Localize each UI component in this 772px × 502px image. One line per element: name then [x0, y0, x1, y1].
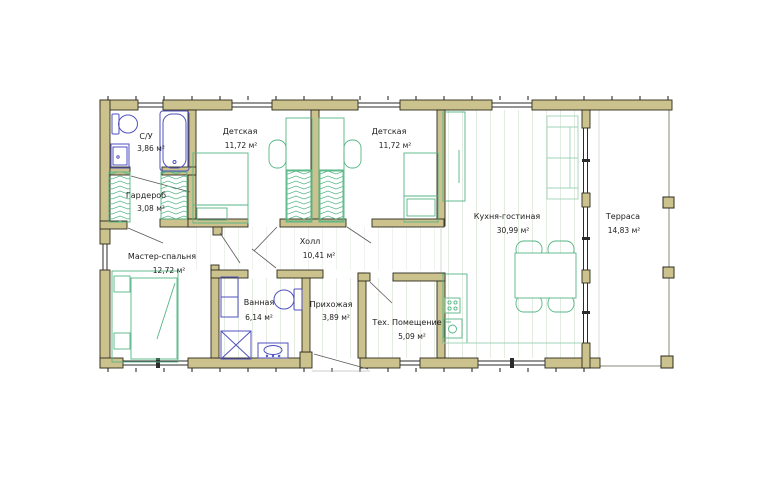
room-area-garderob: 3,08 м² [137, 204, 165, 213]
room-label-tech: Тех. Помещение [371, 318, 441, 327]
bed-icon [193, 153, 248, 223]
room-area-kitchen: 30,99 м² [497, 226, 530, 235]
room-area-hall: 10,41 м² [303, 251, 336, 260]
terrace-post [663, 267, 674, 278]
room-label-garderob: Гардероб [126, 191, 166, 200]
bed-icon [319, 118, 361, 222]
room-label-master: Мастер-спальня [128, 252, 196, 261]
bedside-table-icon [344, 140, 361, 168]
bed-icon [269, 118, 312, 222]
floor-plan: С/У 3,86 м² Гардероб 3,08 м² Детская 11,… [0, 0, 772, 502]
room-area-detskaya-2: 11,72 м² [379, 141, 412, 150]
room-label-terrace: Терраса [605, 212, 640, 221]
terrace-post [663, 197, 674, 208]
room-area-detskaya-1: 11,72 м² [225, 141, 258, 150]
room-label-hall: Холл [300, 237, 321, 246]
room-area-bathroom: 6,14 м² [245, 313, 273, 322]
terrace-post [661, 356, 673, 368]
room-area-su: 3,86 м² [137, 144, 165, 153]
sink-icon [111, 144, 129, 168]
room-area-terrace: 14,83 м² [608, 226, 641, 235]
wc-fixtures [111, 111, 189, 171]
room-label-entry: Прихожая [310, 300, 353, 309]
bathtub-icon [160, 111, 189, 171]
room-area-master: 12,72 м² [153, 266, 186, 275]
room-label-detskaya-2: Детская [372, 127, 407, 136]
room-label-detskaya-1: Детская [223, 127, 258, 136]
room-label-su: С/У [139, 132, 152, 141]
room-label-kitchen: Кухня-гостиная [474, 212, 541, 221]
dining-table-icon [515, 253, 576, 298]
room-label-bathroom: Ванная [244, 298, 275, 307]
toilet-icon [112, 114, 138, 134]
room-area-tech: 5,09 м² [398, 332, 426, 341]
master-bed-icon [112, 271, 178, 362]
bedside-table-icon [269, 140, 286, 168]
bed-icon [404, 153, 438, 222]
room-area-entry: 3,89 м² [322, 313, 350, 322]
floor-plan-svg: С/У 3,86 м² Гардероб 3,08 м² Детская 11,… [0, 0, 772, 502]
